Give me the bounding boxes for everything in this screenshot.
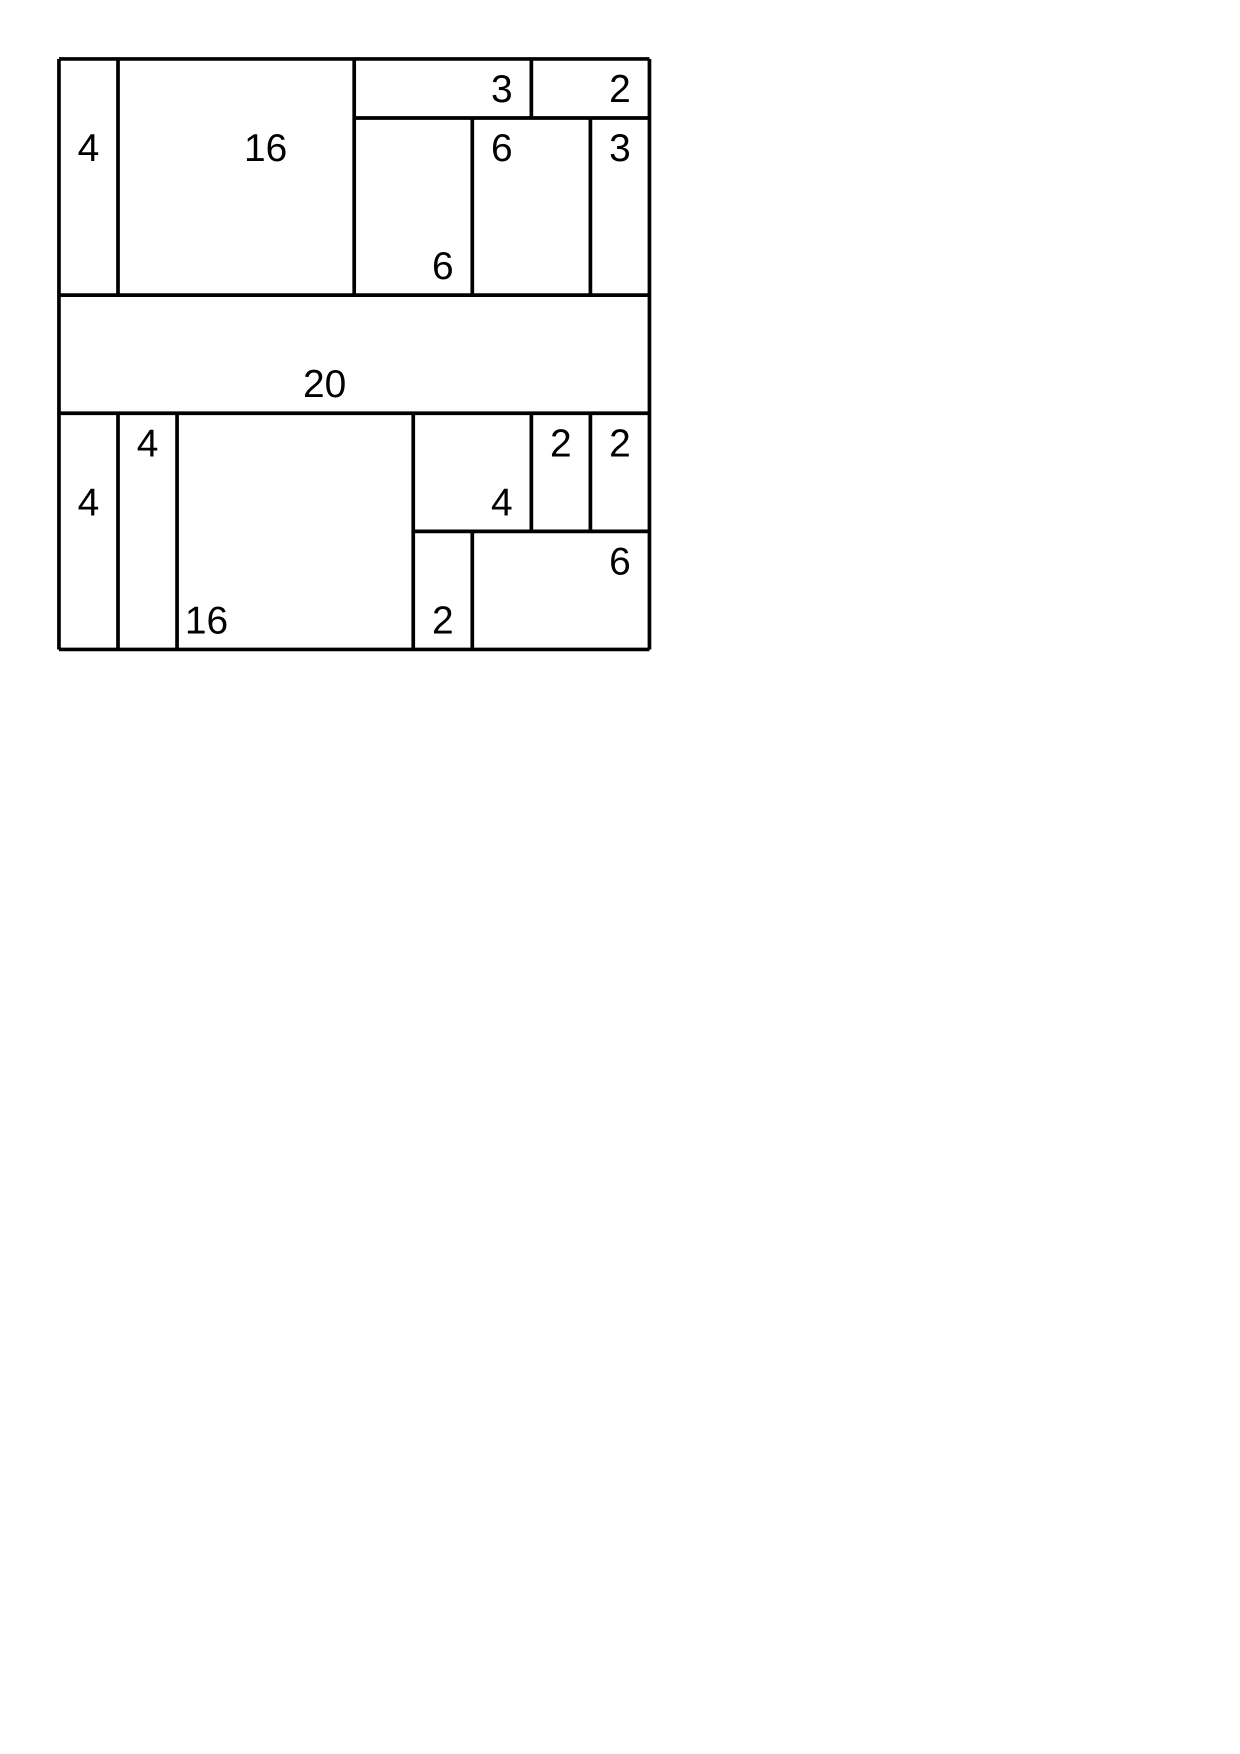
svg-text:16: 16 bbox=[244, 127, 287, 170]
svg-text:4: 4 bbox=[491, 481, 513, 524]
svg-text:16: 16 bbox=[185, 599, 228, 642]
svg-text:4: 4 bbox=[78, 481, 100, 524]
svg-text:2: 2 bbox=[609, 68, 631, 111]
svg-text:2: 2 bbox=[609, 422, 631, 465]
svg-text:3: 3 bbox=[491, 68, 513, 111]
svg-text:6: 6 bbox=[491, 127, 513, 170]
svg-text:6: 6 bbox=[609, 540, 631, 583]
svg-text:4: 4 bbox=[137, 422, 159, 465]
svg-text:4: 4 bbox=[78, 127, 100, 170]
svg-text:3: 3 bbox=[609, 127, 631, 170]
svg-text:2: 2 bbox=[432, 599, 454, 642]
svg-text:20: 20 bbox=[303, 363, 346, 406]
svg-text:2: 2 bbox=[550, 422, 572, 465]
svg-text:6: 6 bbox=[432, 245, 454, 288]
